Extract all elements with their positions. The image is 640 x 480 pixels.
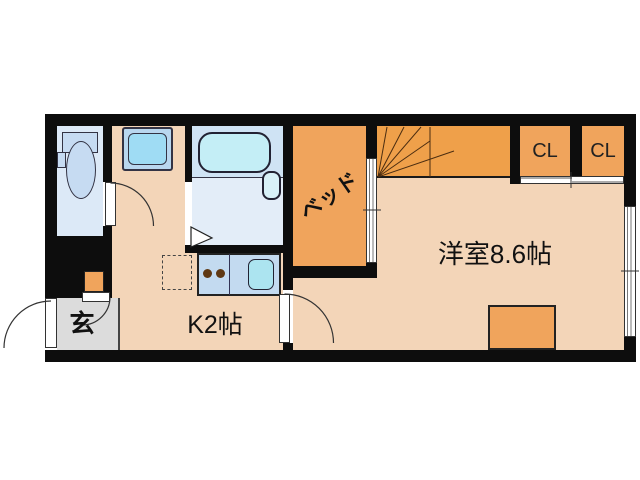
entrance-inner-door-leaf bbox=[82, 292, 110, 302]
wall-toilet-right-lower bbox=[103, 226, 112, 236]
wall-bath-bottom bbox=[185, 245, 283, 253]
toilet-flush-box bbox=[57, 152, 66, 168]
bath-faucet-counter bbox=[262, 171, 281, 200]
wall-toilet-right-upper bbox=[103, 126, 112, 182]
front-door-arc bbox=[4, 301, 51, 348]
shoe-cabinet bbox=[84, 271, 104, 292]
main-room-label: 洋室8.6帖 bbox=[380, 241, 610, 267]
bathtub bbox=[198, 132, 271, 173]
staircase bbox=[377, 126, 510, 178]
washing-machine-drum bbox=[128, 133, 167, 165]
refrigerator-space bbox=[162, 255, 192, 290]
main-room-window bbox=[624, 206, 636, 337]
kitchen-label: K2帖 bbox=[150, 313, 280, 338]
stove-burner-right bbox=[216, 269, 225, 278]
wall-bottom bbox=[45, 350, 636, 362]
wall-bed-right-upper bbox=[366, 126, 377, 158]
entrance-label: 玄 bbox=[58, 312, 106, 337]
wall-bed-right-lower bbox=[366, 263, 377, 278]
toilet-door-leaf bbox=[105, 182, 116, 226]
closet-right-label: CL bbox=[582, 126, 624, 176]
bed-room-window bbox=[366, 158, 377, 263]
closet-sliding-track bbox=[520, 176, 624, 184]
wall-bath-left bbox=[185, 126, 192, 182]
wall-closet-divider bbox=[570, 126, 582, 176]
floorplan-canvas: ベッド 洋室8.6帖 K2帖 玄 CL CL bbox=[0, 0, 640, 480]
front-door-leaf bbox=[45, 298, 57, 348]
toilet-bowl bbox=[66, 141, 96, 199]
bed-label: ベッド bbox=[296, 168, 362, 223]
closet-left-label: CL bbox=[520, 126, 570, 176]
wall-bed-bottom bbox=[283, 266, 377, 278]
main-room-door-leaf bbox=[279, 294, 290, 343]
kitchen-counter-divider bbox=[229, 254, 230, 295]
kitchen-sink bbox=[248, 259, 274, 290]
wall-top bbox=[45, 114, 636, 126]
bath-door-opening bbox=[185, 182, 192, 245]
low-board bbox=[488, 305, 556, 350]
bed-label-area: ベッド bbox=[293, 126, 366, 266]
wall-right-top bbox=[624, 114, 636, 206]
closet-right-text: CL bbox=[590, 141, 616, 161]
closet-left-text: CL bbox=[532, 141, 558, 161]
wall-stairs-closet bbox=[510, 126, 520, 184]
wall-door-stub bbox=[283, 343, 293, 352]
wall-right-bottom bbox=[624, 337, 636, 362]
stove-burner-left bbox=[203, 269, 212, 278]
